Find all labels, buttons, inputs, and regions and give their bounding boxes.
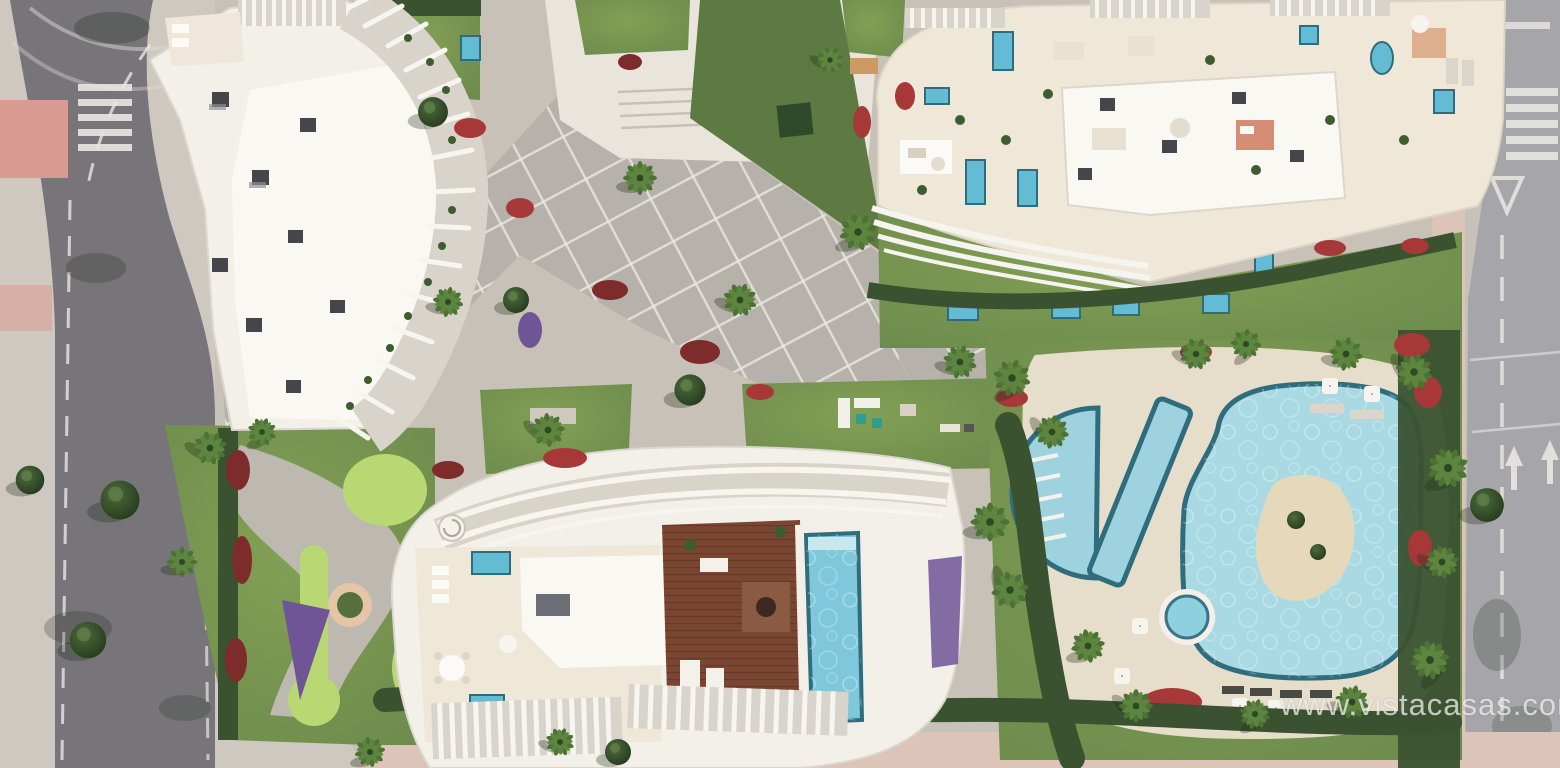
- garden-fountain: [337, 592, 363, 618]
- tree-shadow: [1473, 599, 1521, 671]
- bottom-building: [392, 447, 965, 768]
- tree-shadow: [66, 253, 126, 283]
- deck-dining-table: [700, 558, 728, 572]
- tree-shadow: [159, 695, 211, 721]
- sun-lounger: [172, 38, 189, 47]
- sun-lounger: [172, 24, 189, 33]
- umbrella: [1132, 618, 1148, 634]
- flower-bed: [928, 556, 962, 668]
- umbrella: [1364, 386, 1380, 402]
- outdoor-sofa: [536, 594, 570, 616]
- pink-painted-area: [0, 285, 52, 331]
- umbrella: [499, 635, 517, 653]
- umbrella: [1411, 15, 1429, 33]
- watermark: www.vistacasas.com: [1280, 687, 1560, 723]
- outdoor-dining-table: [850, 58, 878, 74]
- roof-terrace: [165, 12, 244, 66]
- lagoon-pool: [1183, 384, 1422, 678]
- garden-shed: [776, 102, 813, 137]
- sun-lounger: [1462, 60, 1474, 86]
- patterned-rug: [1236, 120, 1274, 150]
- fire-pit: [756, 597, 776, 617]
- lawn: [842, 0, 905, 58]
- tree-shadow: [74, 12, 150, 44]
- outdoor-dining-table: [439, 655, 465, 681]
- island-shrub: [1287, 511, 1305, 529]
- scene-canvas: [0, 0, 1560, 768]
- top-right-building: [853, 0, 1505, 301]
- umbrella: [1114, 668, 1130, 684]
- aerial-residential-render: www.vistacasas.com: [0, 0, 1560, 768]
- pergola-slats: [238, 0, 346, 26]
- pool-steps: [808, 537, 856, 550]
- island-shrub: [1310, 544, 1326, 560]
- lawn: [575, 0, 690, 55]
- sun-lounger: [1310, 404, 1344, 413]
- jacuzzi-pool: [1159, 589, 1215, 645]
- plunge-pool: [461, 36, 480, 60]
- sun-lounger: [1350, 410, 1384, 419]
- umbrella: [1322, 378, 1338, 394]
- sun-lounger: [1446, 58, 1458, 84]
- spiral-stair: [439, 515, 465, 541]
- pink-painted-area: [0, 100, 68, 178]
